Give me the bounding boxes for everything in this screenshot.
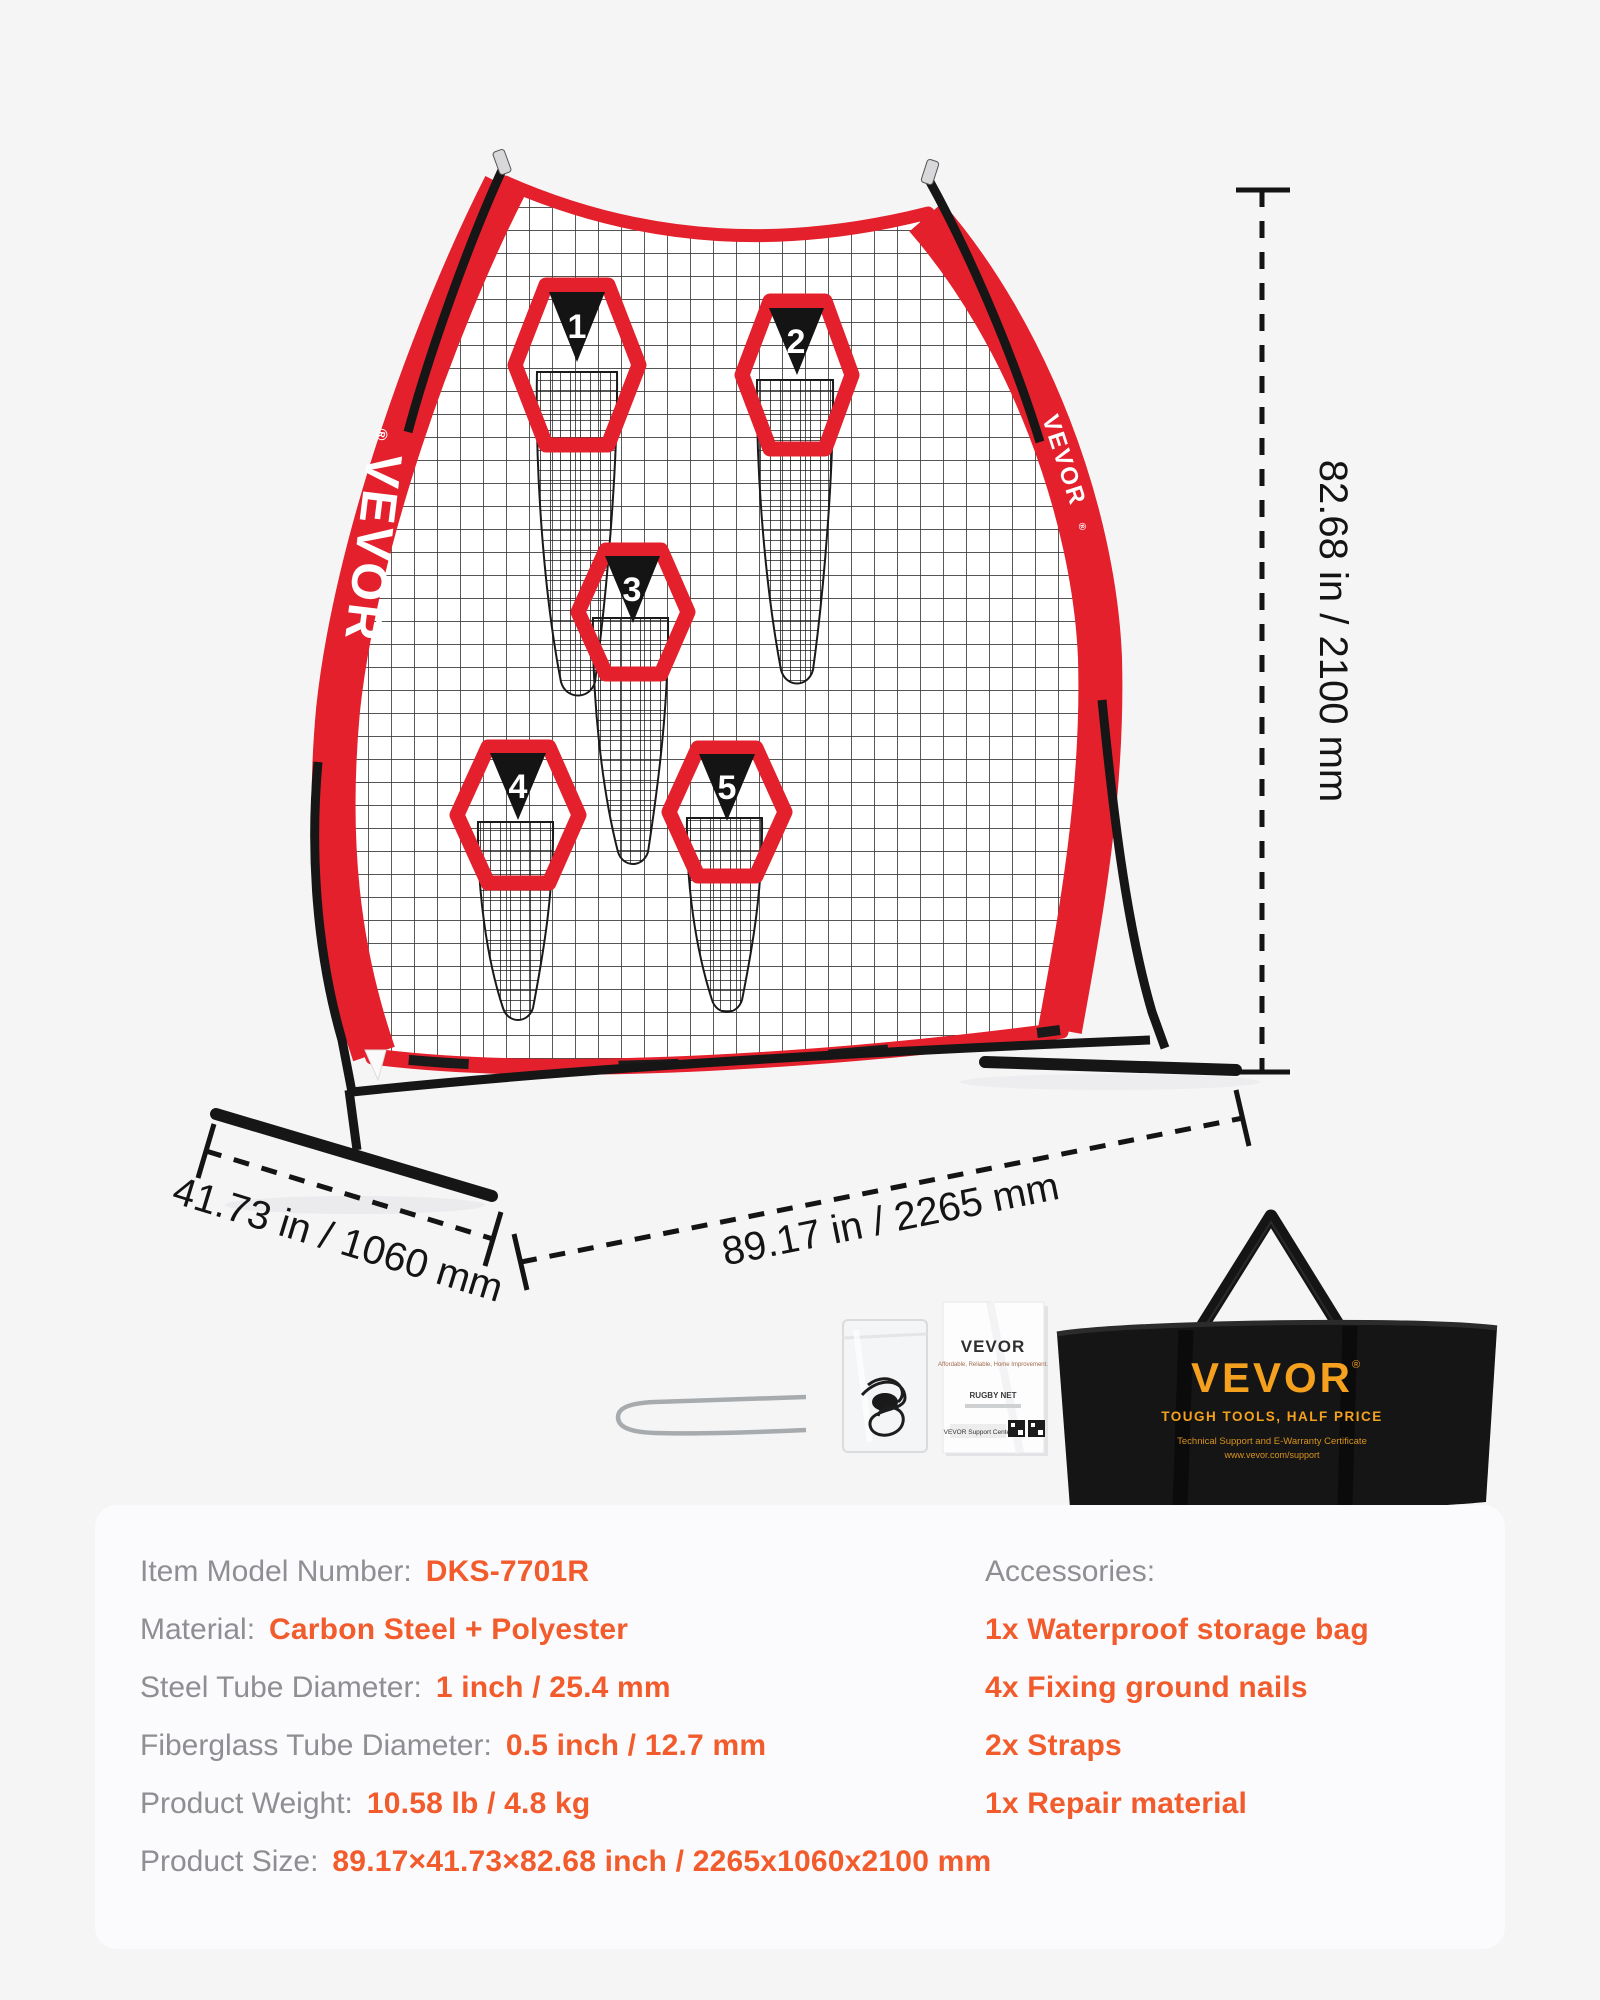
bag-handle-strap (1196, 1216, 1344, 1336)
accessory-item-row: 1x Waterproof storage bag (985, 1601, 1369, 1659)
ground-stake (618, 1397, 806, 1433)
accessories-label: Accessories: (985, 1555, 1155, 1589)
spec-column-left: Item Model Number: DKS-7701R Material: C… (140, 1543, 991, 1891)
bag-registered-mark: ® (1352, 1359, 1360, 1371)
accessory-item-row: 1x Repair material (985, 1775, 1369, 1833)
accessory-item: 4x Fixing ground nails (985, 1671, 1308, 1705)
accessory-item: 2x Straps (985, 1729, 1122, 1763)
right-foot-bar (985, 1062, 1236, 1070)
spec-label: Product Size: (140, 1845, 318, 1879)
accessory-item-row: 4x Fixing ground nails (985, 1659, 1369, 1717)
right-pole-bottom (1102, 700, 1165, 1048)
left-foot-stub (349, 1090, 357, 1150)
accessory-item: 1x Repair material (985, 1787, 1247, 1821)
target-number-3: 3 (623, 571, 642, 609)
manual: VEVOR Affordable, Reliable, Home Improve… (938, 1302, 1048, 1456)
target-number-4: 4 (509, 768, 528, 806)
width-dimension-label: 89.17 in / 2265 mm (718, 1164, 1062, 1274)
repair-cord-bag (843, 1320, 927, 1452)
spec-row-size: Product Size: 89.17×41.73×82.68 inch / 2… (140, 1833, 991, 1891)
spec-value: 1 inch / 25.4 mm (436, 1671, 671, 1705)
target-number-2: 2 (787, 323, 806, 361)
height-dimension-label: 82.68 in / 2100 mm (1311, 460, 1355, 802)
ground-shadow-right (960, 1074, 1260, 1090)
bag-brand: VEVOR (1191, 1354, 1353, 1401)
spec-label: Fiberglass Tube Diameter: (140, 1729, 492, 1763)
left-pole-cap (492, 149, 511, 176)
spec-value: Carbon Steel + Polyester (269, 1613, 628, 1647)
spec-label: Material: (140, 1613, 255, 1647)
manual-brand: VEVOR (961, 1337, 1026, 1356)
bag-slogan: TOUGH TOOLS, HALF PRICE (1161, 1409, 1383, 1424)
spec-card: Item Model Number: DKS-7701R Material: C… (95, 1505, 1505, 1949)
spec-value: 0.5 inch / 12.7 mm (506, 1729, 766, 1763)
spec-row-material: Material: Carbon Steel + Polyester (140, 1601, 991, 1659)
spec-column-right: Accessories: 1x Waterproof storage bag 4… (985, 1543, 1369, 1833)
spec-value: DKS-7701R (426, 1555, 590, 1589)
spec-label: Steel Tube Diameter: (140, 1671, 422, 1705)
bag-support-line: Technical Support and E-Warranty Certifi… (1177, 1436, 1367, 1447)
accessory-item-row: 2x Straps (985, 1717, 1369, 1775)
accessories-header-row: Accessories: (985, 1543, 1369, 1601)
width-dimension-caps (514, 1090, 1249, 1290)
spec-row-model: Item Model Number: DKS-7701R (140, 1543, 991, 1601)
spec-value: 10.58 lb / 4.8 kg (367, 1787, 591, 1821)
spec-label: Item Model Number: (140, 1555, 412, 1589)
target-number-1: 1 (568, 308, 587, 346)
spec-row-steel-tube: Steel Tube Diameter: 1 inch / 25.4 mm (140, 1659, 991, 1717)
spec-row-fiberglass-tube: Fiberglass Tube Diameter: 0.5 inch / 12.… (140, 1717, 991, 1775)
manual-support-label: VEVOR Support Center (944, 1429, 1013, 1436)
storage-bag: VEVOR ® TOUGH TOOLS, HALF PRICE Technica… (1052, 1216, 1497, 1505)
right-pole-cap (921, 159, 940, 186)
product-illustration: VEVOR ® VEVOR ® 1 2 3 4 5 (0, 0, 1600, 1505)
accessory-item: 1x Waterproof storage bag (985, 1613, 1369, 1647)
spec-row-weight: Product Weight: 10.58 lb / 4.8 kg (140, 1775, 991, 1833)
manual-model-line (965, 1404, 1021, 1408)
manual-product-title: RUGBY NET (970, 1391, 1017, 1400)
manual-tagline: Affordable, Reliable, Home Improvement. (938, 1362, 1048, 1368)
spec-label: Product Weight: (140, 1787, 353, 1821)
spec-value: 89.17×41.73×82.68 inch / 2265x1060x2100 … (332, 1845, 991, 1879)
left-sleeve-registered-mark: ® (372, 428, 390, 442)
product-infographic: VEVOR ® VEVOR ® 1 2 3 4 5 (0, 0, 1600, 2000)
target-number-5: 5 (718, 769, 737, 807)
bag-url-line: www.vevor.com/support (1223, 1450, 1320, 1460)
